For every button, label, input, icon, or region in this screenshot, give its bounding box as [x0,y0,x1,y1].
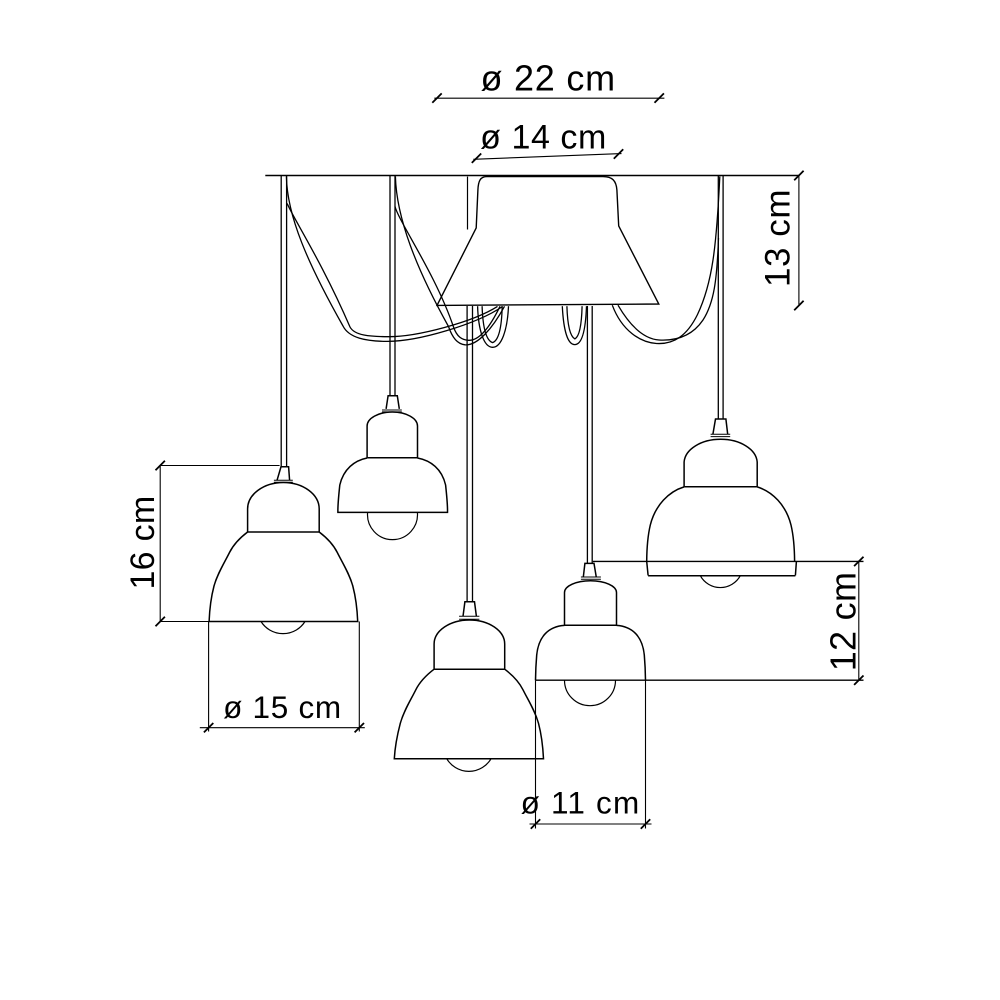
svg-text:ø 14 cm: ø 14 cm [480,119,607,157]
svg-text:13 cm: 13 cm [759,189,798,287]
svg-text:16 cm: 16 cm [124,495,162,589]
svg-text:ø 15 cm: ø 15 cm [223,689,342,725]
svg-text:ø 11 cm: ø 11 cm [521,784,641,820]
svg-text:12 cm: 12 cm [823,572,864,672]
svg-text:ø 22 cm: ø 22 cm [481,57,616,98]
